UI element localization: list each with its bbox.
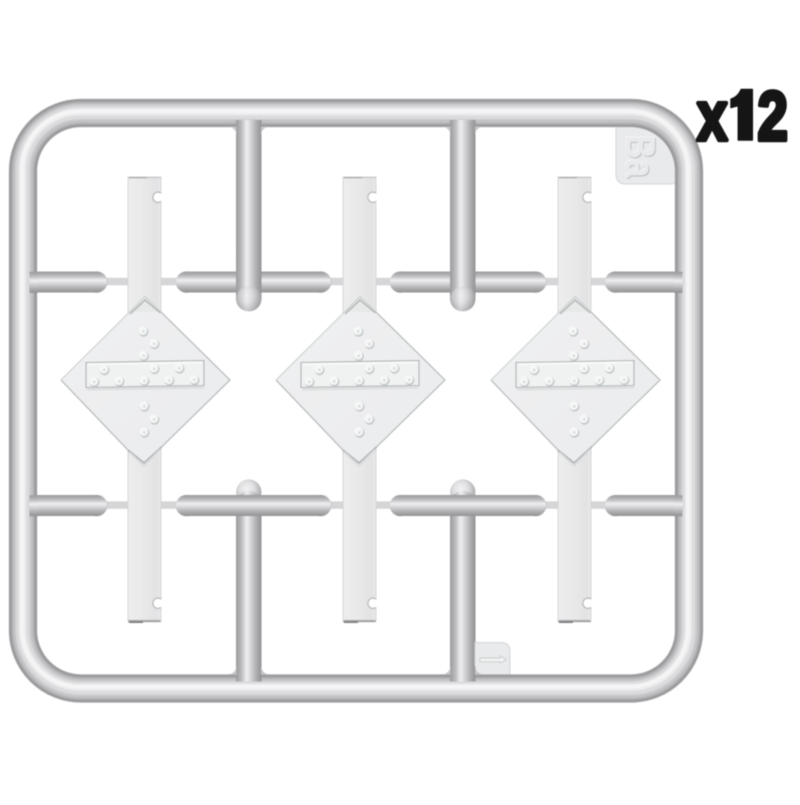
- svg-text:Ba: Ba: [617, 135, 664, 179]
- svg-text:x: x: [697, 78, 727, 156]
- svg-text:2: 2: [758, 78, 788, 156]
